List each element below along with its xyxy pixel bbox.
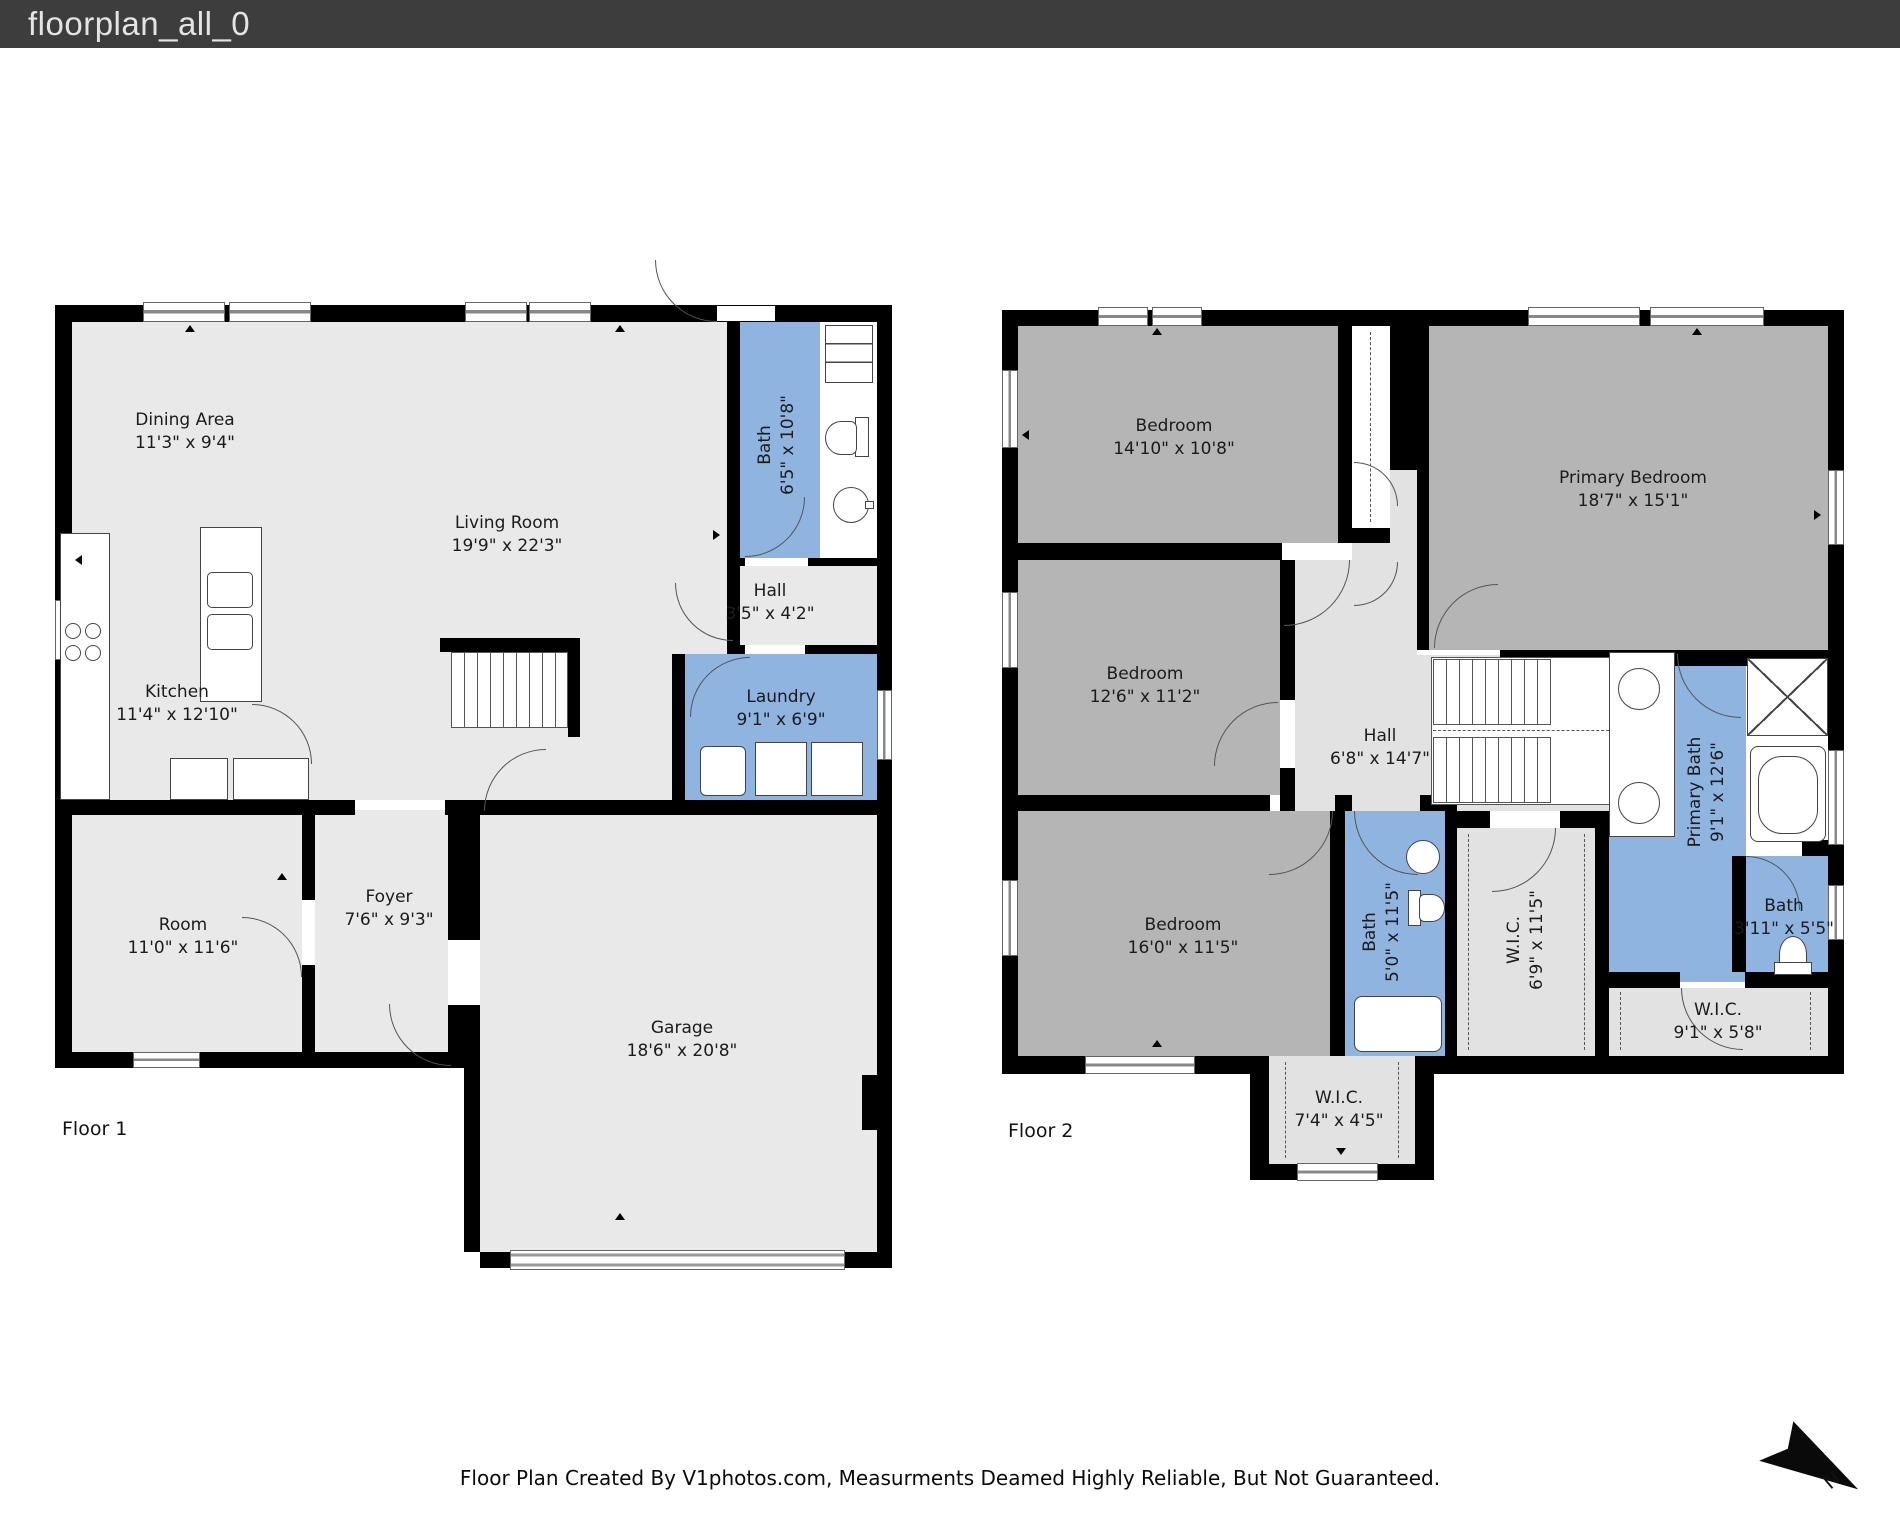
wall-arrow-marker (75, 555, 82, 565)
wall-arrow-marker (185, 325, 195, 332)
cabinet (233, 758, 309, 800)
room-label-bedroom-1: Bedroom 14'10" x 10'8" (1113, 415, 1235, 461)
closet-rod-line (1620, 992, 1621, 1050)
window (465, 302, 527, 322)
window (1528, 307, 1640, 326)
window (529, 302, 591, 322)
room-name: W.I.C. (1673, 999, 1762, 1022)
sink-basin-icon (207, 614, 253, 650)
window (1650, 307, 1764, 326)
wall (302, 810, 315, 900)
room-name: Bedroom (1090, 663, 1201, 686)
wall-arrow-marker (1336, 1148, 1346, 1155)
toilet-icon (1774, 962, 1812, 975)
door-opening (717, 306, 775, 321)
wall-arrow-marker (277, 873, 287, 880)
wall (1338, 310, 1352, 543)
wall (1415, 1056, 1434, 1180)
wall (805, 645, 877, 654)
room-name: Laundry (736, 686, 825, 709)
wall (1417, 310, 1429, 650)
floor1-label: Floor 1 (62, 1118, 127, 1140)
tub-icon (1354, 996, 1442, 1052)
utility-sink-icon (700, 746, 746, 796)
wall (1352, 528, 1390, 543)
shower-icon (1747, 658, 1828, 736)
wall (448, 800, 480, 940)
room-name: Bedroom (1128, 914, 1239, 937)
room-dims: 6'9" x 11'5" (1526, 890, 1549, 990)
window (143, 302, 225, 322)
room-label-wic-2: W.I.C. 9'1" x 5'8" (1673, 999, 1762, 1045)
north-arrow-icon (1757, 1418, 1867, 1512)
sink-icon (833, 487, 869, 523)
wall (1018, 795, 1270, 811)
room-name: Bath (1734, 895, 1834, 918)
room-dims: 11'3" x 9'4" (135, 432, 235, 455)
wall (1828, 310, 1844, 1074)
room-label-bath2: Bath 5'0" x 11'5" (1359, 882, 1405, 982)
wall (1280, 768, 1295, 811)
room-dims: 6'8" x 14'7" (1330, 748, 1430, 771)
closet-rod-line (1468, 834, 1469, 1050)
landing-fill (1390, 470, 1417, 543)
room-dims: 7'4" x 4'5" (1294, 1110, 1383, 1133)
linen-shelf-icon (825, 325, 873, 383)
room-name: Primary Bedroom (1559, 467, 1707, 490)
wall (440, 638, 580, 652)
wall (727, 558, 745, 566)
wall (672, 654, 685, 800)
room-label-primary-bedroom: Primary Bedroom 18'7" x 15'1" (1559, 467, 1707, 513)
wall (1390, 310, 1417, 470)
wall-arrow-marker (615, 1213, 625, 1220)
room-dims: 11'0" x 11'6" (128, 937, 239, 960)
window (229, 302, 311, 322)
kitchen-counter (60, 533, 110, 800)
room-label-laundry: Laundry 9'1" x 6'9" (736, 686, 825, 732)
room-dims: 18'6" x 20'8" (627, 1040, 738, 1063)
room-dims: 19'9" x 22'3" (452, 535, 563, 558)
washer-icon (755, 742, 807, 796)
room-dims: 3'11" x 5'5" (1734, 918, 1834, 941)
wall (727, 645, 745, 654)
wall (464, 1068, 480, 1252)
room-name: Bath (754, 395, 777, 495)
staircase (451, 652, 568, 728)
room-label-foyer: Foyer 7'6" x 9'3" (344, 886, 433, 932)
toilet-icon (1419, 894, 1445, 922)
room-label-primary-bath: Primary Bath 9'1" x 12'6" (1684, 737, 1730, 848)
sink-icon (1406, 840, 1440, 874)
wall-arrow-marker (1152, 1040, 1162, 1047)
sink-icon (1618, 782, 1660, 824)
wall (1560, 811, 1595, 828)
room-name: Foyer (344, 886, 433, 909)
room-label-bedroom-2: Bedroom 12'6" x 11'2" (1090, 663, 1201, 709)
closet-rod-line (1810, 992, 1811, 1050)
wall (448, 1005, 480, 1068)
stove-burner-icon (65, 623, 81, 639)
wall (302, 965, 315, 1052)
stove-burner-icon (85, 645, 101, 661)
room-name: Room (128, 914, 239, 937)
room-dims: 9'1" x 5'8" (1673, 1022, 1762, 1045)
closet-rod-line (1398, 1062, 1399, 1158)
wall (1595, 811, 1609, 1056)
room-label-bath: Bath 6'5" x 10'8" (754, 395, 800, 495)
title-bar: floorplan_all_0 (0, 0, 1900, 48)
room-name: Hall (725, 580, 814, 603)
sink-icon (1618, 668, 1660, 710)
floor1-plan: Dining Area 11'3" x 9'4" Living Room 19'… (55, 305, 892, 1268)
toilet-icon (825, 421, 857, 455)
wall-arrow-marker (713, 530, 720, 540)
room-label-bath3: Bath 3'11" x 5'5" (1734, 895, 1834, 941)
dryer-icon (811, 742, 863, 796)
wall (1609, 972, 1680, 988)
wall (1250, 1056, 1269, 1180)
wall (1018, 543, 1282, 560)
room-name: Living Room (452, 512, 563, 535)
room-dims: 16'0" x 11'5" (1128, 937, 1239, 960)
room-dims: 18'7" x 15'1" (1559, 490, 1707, 513)
window (1828, 750, 1844, 845)
disclaimer-text: Floor Plan Created By V1photos.com, Meas… (0, 1466, 1900, 1490)
sink-basin-icon (207, 572, 253, 608)
wall (1802, 840, 1828, 856)
window (1002, 592, 1018, 668)
wall-arrow-marker (1692, 328, 1702, 335)
garage-door (510, 1250, 845, 1270)
cabinet (170, 758, 228, 800)
page-title: floorplan_all_0 (0, 5, 250, 43)
room-name: W.I.C. (1503, 890, 1526, 990)
wall (1330, 811, 1345, 1056)
window (1098, 307, 1148, 326)
room-label-bedroom-3: Bedroom 16'0" x 11'5" (1128, 914, 1239, 960)
stove-burner-icon (65, 645, 81, 661)
wall-arrow-marker (1814, 510, 1821, 520)
room-label-dining-area: Dining Area 11'3" x 9'4" (135, 409, 235, 455)
closet-rod-line (1584, 834, 1585, 1050)
room-dims: 11'4" x 12'10" (116, 704, 238, 727)
window (1297, 1163, 1378, 1181)
room-dims: 7'6" x 9'3" (344, 909, 433, 932)
room-dims: 9'1" x 12'6" (1707, 737, 1730, 848)
wall (1415, 1056, 1844, 1074)
room-name: Bedroom (1113, 415, 1235, 438)
room-fill-living-dining (72, 322, 727, 800)
window (1828, 470, 1844, 545)
stove-burner-icon (85, 623, 101, 639)
wall (877, 305, 892, 1268)
staircase-flight (1433, 737, 1551, 803)
faucet-icon (865, 501, 874, 509)
room-label-garage: Garage 18'6" x 20'8" (627, 1017, 738, 1063)
room-dims: 14'10" x 10'8" (1113, 438, 1235, 461)
room-label-hall2: Hall 6'8" x 14'7" (1330, 725, 1430, 771)
wall-arrow-marker (615, 325, 625, 332)
window (1085, 1056, 1195, 1074)
room-dims: 9'1" x 6'9" (736, 709, 825, 732)
window (877, 690, 892, 760)
window (1152, 307, 1202, 326)
room-name: Hall (1330, 725, 1430, 748)
tub-basin-icon (1758, 756, 1818, 834)
room-label-kitchen: Kitchen 11'4" x 12'10" (116, 681, 238, 727)
closet-rod-line (1285, 1062, 1286, 1158)
room-name: Bath (1359, 882, 1382, 982)
room-label-hall: Hall 3'5" x 4'2" (725, 580, 814, 626)
window (133, 1052, 200, 1068)
wall (1445, 811, 1457, 1056)
toilet-icon (855, 417, 869, 457)
staircase-flight (1433, 659, 1551, 725)
room-name: Kitchen (116, 681, 238, 704)
room-dims: 3'5" x 4'2" (725, 603, 814, 626)
room-label-living-room: Living Room 19'9" x 22'3" (452, 512, 563, 558)
wall (1335, 795, 1352, 811)
wall (568, 652, 580, 737)
room-label-room: Room 11'0" x 11'6" (128, 914, 239, 960)
room-name: Primary Bath (1684, 737, 1707, 848)
garage-wall-stub (862, 1075, 877, 1130)
room-dims: 6'5" x 10'8" (777, 395, 800, 495)
floor2-label: Floor 2 (1008, 1120, 1073, 1142)
room-dims: 12'6" x 11'2" (1090, 686, 1201, 709)
room-label-wic-1: W.I.C. 6'9" x 11'5" (1503, 890, 1549, 990)
wall-arrow-marker (1022, 430, 1029, 440)
stair-rail-line (1433, 730, 1619, 731)
floor2-plan: Bedroom 14'10" x 10'8" Primary Bedroom 1… (1002, 310, 1844, 1180)
room-name: Dining Area (135, 409, 235, 432)
wall (808, 558, 877, 566)
room-label-wic-3: W.I.C. 7'4" x 4'5" (1294, 1087, 1383, 1133)
room-name: W.I.C. (1294, 1087, 1383, 1110)
room-name: Garage (627, 1017, 738, 1040)
room-dims: 5'0" x 11'5" (1382, 882, 1405, 982)
wall (1457, 811, 1490, 828)
window (1002, 880, 1018, 956)
window (1002, 370, 1018, 448)
wall-arrow-marker (1152, 328, 1162, 335)
